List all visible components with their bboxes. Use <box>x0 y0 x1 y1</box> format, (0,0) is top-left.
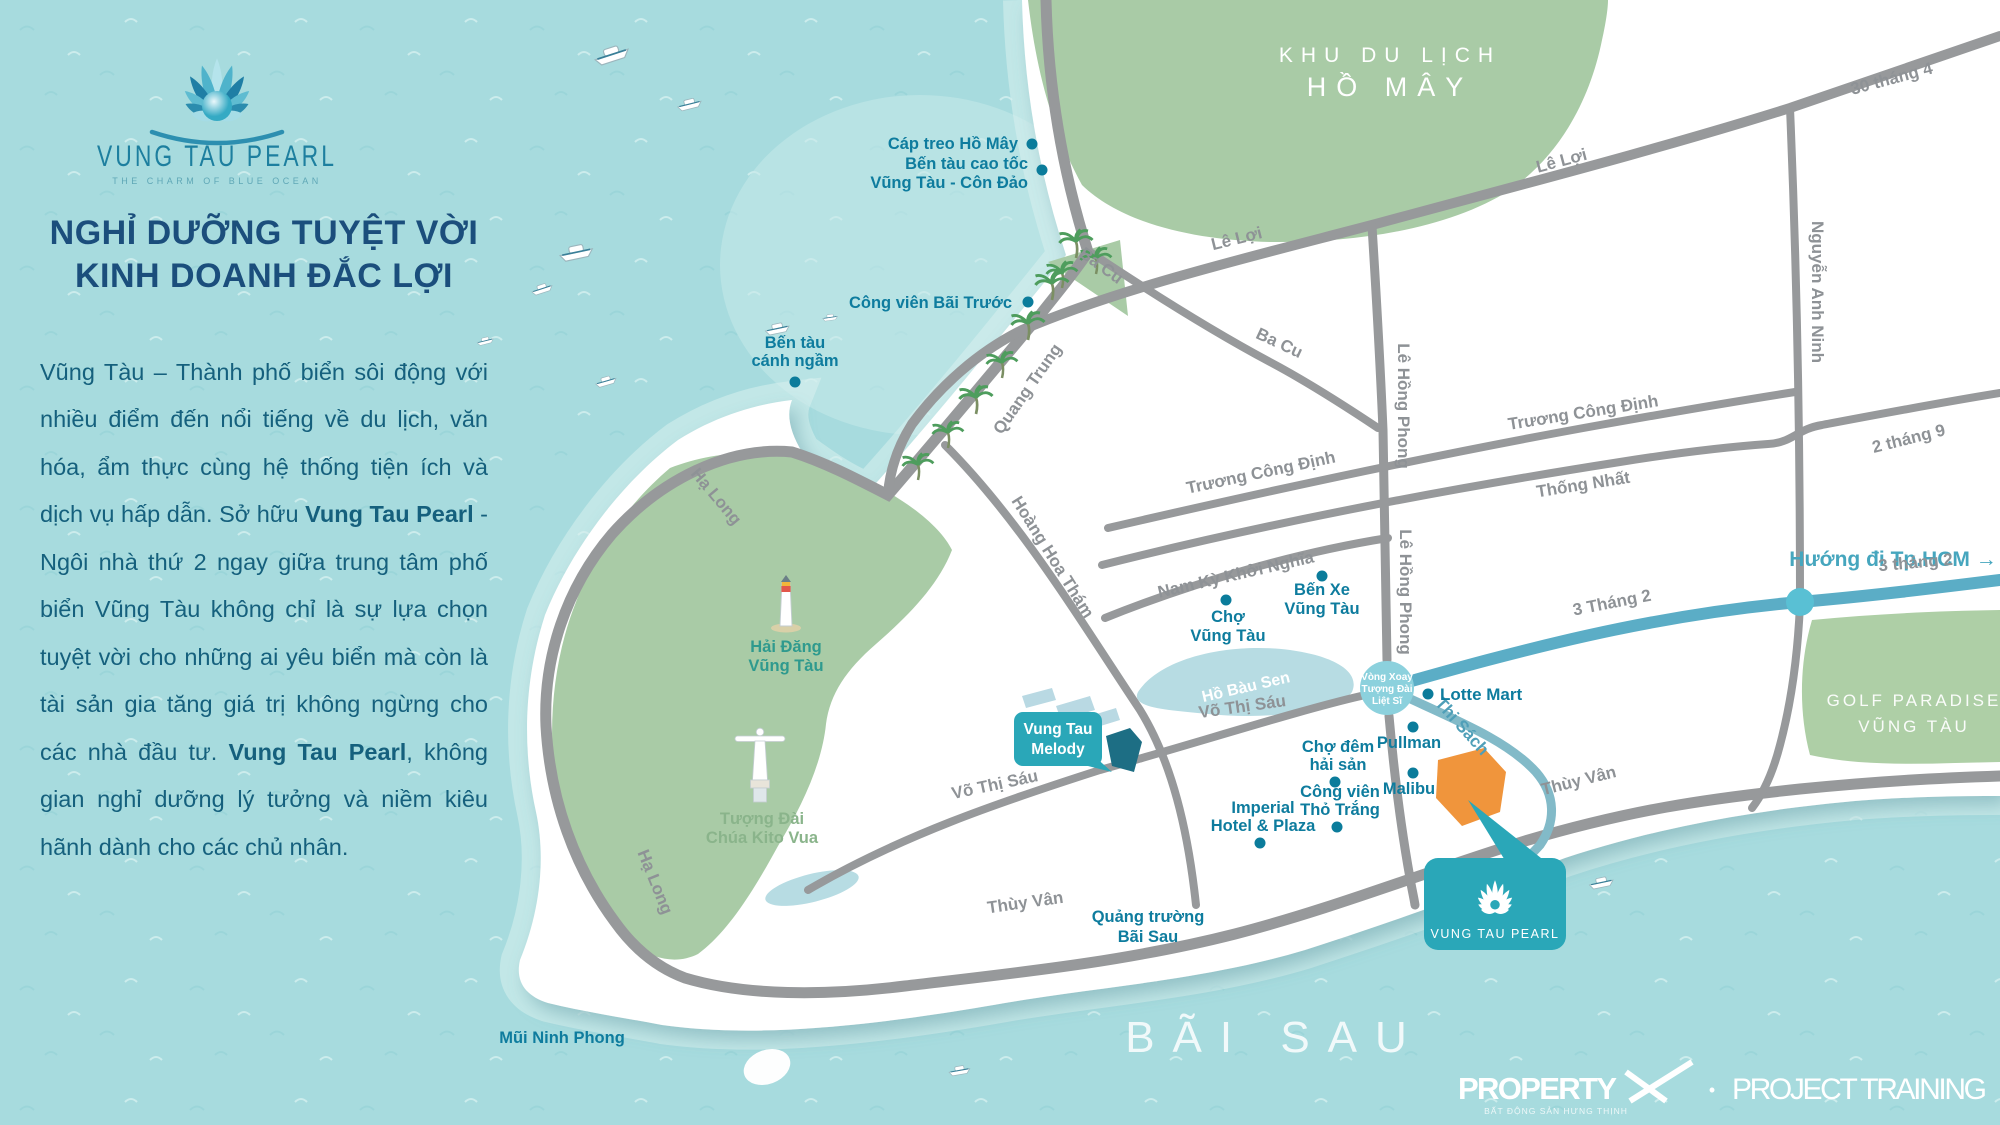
area-label-khu-du-lich: KHU DU LỊCH <box>1279 44 1501 67</box>
poi-label-tuong-dai-2: Chúa Kito Vua <box>706 829 819 847</box>
poi-label-ben-tau-cao-toc-2: Vũng Tàu - Côn Đảo <box>870 174 1028 192</box>
poi-dot-lotte <box>1423 689 1434 700</box>
brand-logo: VUNG TAU PEARL THE CHARM OF BLUE OCEAN <box>82 14 352 199</box>
road-label-nguyen-anh-ninh: Nguyễn Anh Ninh <box>1808 221 1827 363</box>
poi-label-cho-dem-1: Chợ đêm <box>1302 738 1374 756</box>
poi-dot-tho-trang <box>1332 822 1343 833</box>
area-label-bai-sau: BÃI SAU <box>1125 1012 1425 1062</box>
poi-dot-malibu <box>1408 768 1419 779</box>
intro-paragraph: Vũng Tàu – Thành phố biển sôi động với n… <box>40 349 488 871</box>
svg-text:VUNG TAU PEARL: VUNG TAU PEARL <box>1431 927 1560 941</box>
poi-label-cho-vt-1: Chợ <box>1211 608 1245 626</box>
poi-label-tho-trang-1: Công viên <box>1300 783 1380 801</box>
poi-dot-cho-vung-tau <box>1221 595 1232 606</box>
poi-label-lotte: Lotte Mart <box>1440 685 1523 704</box>
poi-label-cho-dem-2: hải sản <box>1310 756 1367 774</box>
svg-text:Vung Tau: Vung Tau <box>1024 721 1093 738</box>
poi-label-imperial-2: Hotel & Plaza <box>1211 817 1316 835</box>
intro-panel: NGHỈ DƯỠNG TUYỆT VỜI KINH DOANH ĐẮC LỢI … <box>40 212 488 871</box>
footer-separator: • <box>1709 1080 1715 1100</box>
poi-dot-cong-vien-bai-truoc <box>1023 297 1034 308</box>
road-label-le-hong-phong-2: Lê Hồng Phong <box>1396 529 1415 655</box>
poi-label-ben-xe-1: Bến Xe <box>1294 581 1350 599</box>
area-label-golf-2: VŨNG TÀU <box>1858 717 1970 736</box>
melody-callout: Vung Tau Melody <box>1014 712 1112 772</box>
poi-label-ben-tau-canh-ngam-1: Bến tàu <box>765 334 826 352</box>
poi-label-cap-treo: Cáp treo Hồ Mây <box>888 135 1019 153</box>
footer-label: PROJECT TRAINING <box>1732 1073 1990 1106</box>
poi-dot-imperial <box>1255 838 1266 849</box>
poi-label-tuong-dai-1: Tượng Đài <box>720 810 804 828</box>
roundabout-3thang2 <box>1786 588 1814 616</box>
footer-brand: PROPERTY <box>1458 1071 1618 1106</box>
poi-dot-ben-tau-canh-ngam <box>790 377 801 388</box>
intro-heading-line2: KINH DOANH ĐẮC LỢI <box>75 257 453 295</box>
poi-label-cong-vien-bai-truoc: Công viên Bãi Trước <box>849 294 1012 312</box>
svg-text:Liệt Sĩ: Liệt Sĩ <box>1372 696 1403 707</box>
intro-heading: NGHỈ DƯỠNG TUYỆT VỜI KINH DOANH ĐẮC LỢI <box>40 212 488 297</box>
logo-tagline: THE CHARM OF BLUE OCEAN <box>112 176 322 186</box>
intro-heading-line1: NGHỈ DƯỠNG TUYỆT VỜI <box>50 214 479 252</box>
svg-text:Tượng Đài: Tượng Đài <box>1361 684 1412 695</box>
svg-text:Melody: Melody <box>1031 741 1085 758</box>
poi-label-quang-truong-1: Quảng trường <box>1092 908 1205 926</box>
poi-label-ben-tau-cao-toc-1: Bến tàu cao tốc <box>905 155 1028 173</box>
poi-dot-pullman <box>1408 722 1419 733</box>
logo-title: VUNG TAU PEARL <box>97 140 337 173</box>
poi-dot-ben-tau-cao-toc <box>1037 165 1048 176</box>
poi-label-imperial-1: Imperial <box>1231 799 1294 817</box>
poi-label-hai-dang-1: Hải Đăng <box>750 638 822 656</box>
poi-label-malibu: Malibu <box>1383 780 1435 798</box>
area-label-golf-1: GOLF PARADISE <box>1827 691 2000 710</box>
area-label-ho-may: HỒ MÂY <box>1307 71 1474 102</box>
poi-dot-cap-treo <box>1027 139 1038 150</box>
golf-paradise-area <box>1802 610 2000 764</box>
poi-label-ben-xe-2: Vũng Tàu <box>1284 600 1359 618</box>
lotus-logo-icon: VUNG TAU PEARL THE CHARM OF BLUE OCEAN <box>82 14 352 194</box>
poster: KHU DU LỊCH HỒ MÂY GOLF PARADISE VŨNG TÀ… <box>0 0 2000 1125</box>
poi-dot-ben-xe <box>1317 571 1328 582</box>
poi-label-quang-truong-2: Bãi Sau <box>1118 928 1179 946</box>
poi-label-pullman: Pullman <box>1377 734 1441 752</box>
poi-label-cho-vt-2: Vũng Tàu <box>1190 627 1265 645</box>
svg-text:Vòng Xoay: Vòng Xoay <box>1361 672 1413 683</box>
footer-brand-tagline: BẤT ĐỘNG SẢN HƯNG THỊNH <box>1484 1105 1628 1116</box>
road-label-le-hong-phong-1: Lê Hồng Phong <box>1394 343 1413 469</box>
cape-label-mui-ninh-phong: Mũi Ninh Phong <box>499 1029 625 1047</box>
poi-label-hai-dang-2: Vũng Tàu <box>748 657 823 675</box>
poi-label-ben-tau-canh-ngam-2: cánh ngầm <box>751 352 838 370</box>
